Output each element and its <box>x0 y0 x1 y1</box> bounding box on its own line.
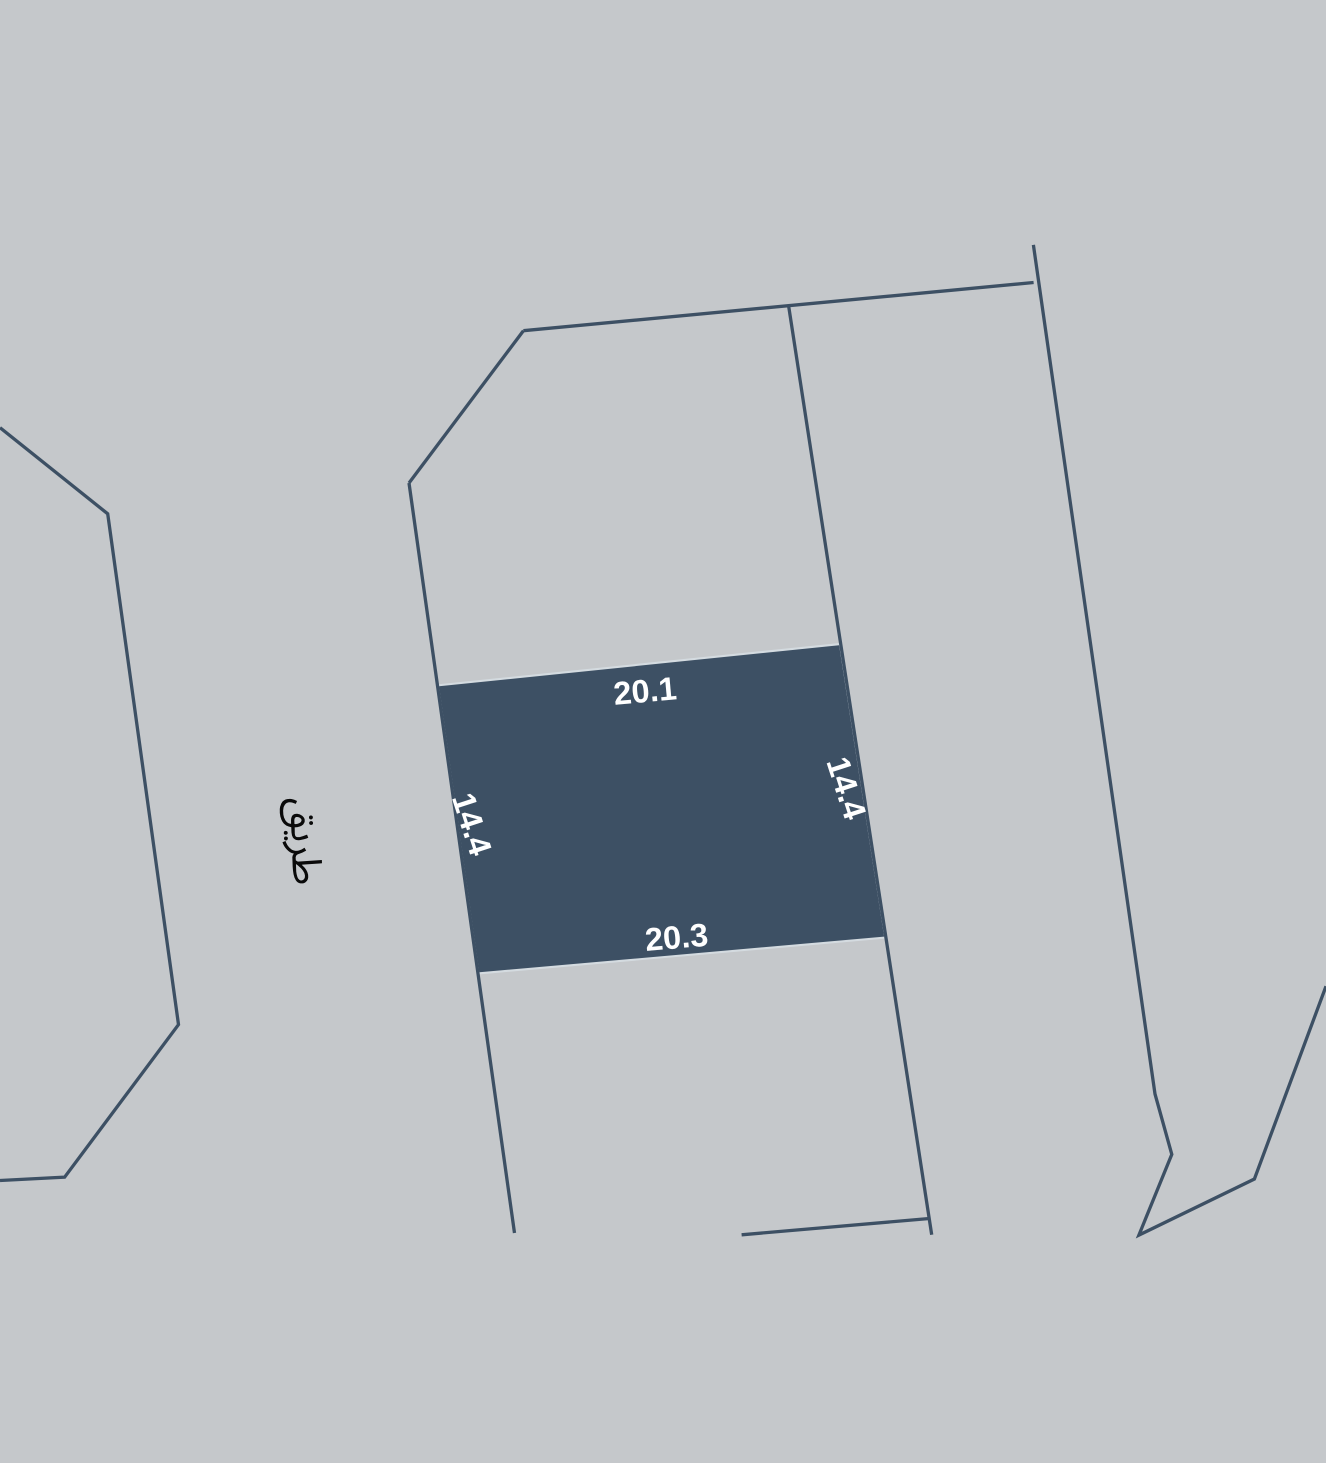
svg-text:20.1: 20.1 <box>612 670 678 712</box>
svg-text:20.3: 20.3 <box>643 917 709 958</box>
